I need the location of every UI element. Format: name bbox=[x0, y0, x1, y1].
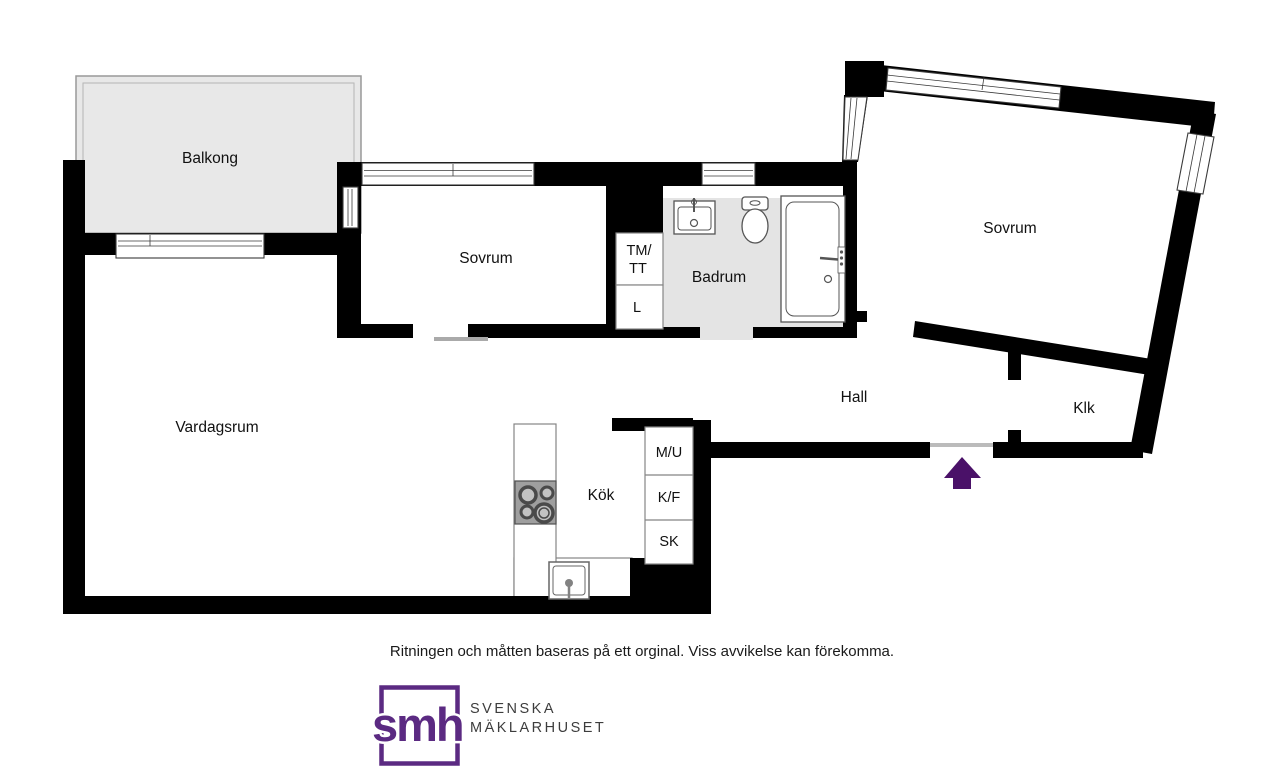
smh-logo: smh SVENSKA MÄKLARHUSET bbox=[372, 688, 606, 764]
smh-logo-monogram: smh bbox=[372, 698, 463, 751]
room-label-balcony: Balkong bbox=[182, 150, 238, 167]
room-label-walkin-closet: Klk bbox=[1073, 400, 1095, 417]
closet-label-l: L bbox=[633, 300, 641, 316]
balcony-side-window bbox=[343, 187, 358, 228]
bathroom-window bbox=[702, 163, 755, 185]
room-label-living-room: Vardagsrum bbox=[175, 419, 258, 436]
bedroom-left-window bbox=[362, 163, 534, 185]
bathtub-icon bbox=[781, 196, 845, 322]
room-label-bedroom-left: Sovrum bbox=[459, 250, 512, 267]
closet-tmtt-box bbox=[616, 233, 663, 285]
kitchen-unit-label-kf: K/F bbox=[658, 490, 681, 506]
balcony-window bbox=[116, 234, 264, 258]
logo-name-line2: MÄKLARHUSET bbox=[470, 719, 606, 736]
kitchen-sink-icon bbox=[549, 562, 589, 599]
entry-door-threshold bbox=[930, 443, 993, 447]
floorplan-drawing: Balkong Sovrum Badrum Sovrum Vardagsrum … bbox=[0, 0, 1280, 777]
logo-name-line1: SVENSKA bbox=[470, 701, 556, 717]
room-label-hall: Hall bbox=[841, 389, 868, 406]
bedroom-right-side-window bbox=[1177, 133, 1214, 194]
bedroom-right-top-window bbox=[886, 68, 1061, 108]
room-label-kitchen: Kök bbox=[588, 487, 615, 504]
bathroom-door-opening bbox=[700, 327, 753, 340]
room-label-bathroom: Badrum bbox=[692, 269, 746, 286]
kitchen-unit-label-sk: SK bbox=[659, 534, 679, 550]
closet-label-tmtt-1: TM/ bbox=[627, 243, 653, 259]
bedroom-right-left-window bbox=[843, 97, 867, 160]
kitchen-unit-label-mu: M/U bbox=[656, 445, 683, 461]
entrance-arrow-icon bbox=[944, 457, 981, 489]
closet-label-tmtt-2: TT bbox=[629, 261, 647, 277]
bedroom-door-threshold bbox=[434, 337, 488, 341]
disclaimer-text: Ritningen och måtten baseras på ett orgi… bbox=[390, 643, 894, 660]
stove-icon bbox=[515, 481, 556, 524]
floorplan-page: Balkong Sovrum Badrum Sovrum Vardagsrum … bbox=[0, 0, 1280, 777]
bathroom-sink-icon bbox=[674, 198, 715, 234]
toilet-icon bbox=[742, 197, 768, 243]
room-label-bedroom-right: Sovrum bbox=[983, 220, 1036, 237]
